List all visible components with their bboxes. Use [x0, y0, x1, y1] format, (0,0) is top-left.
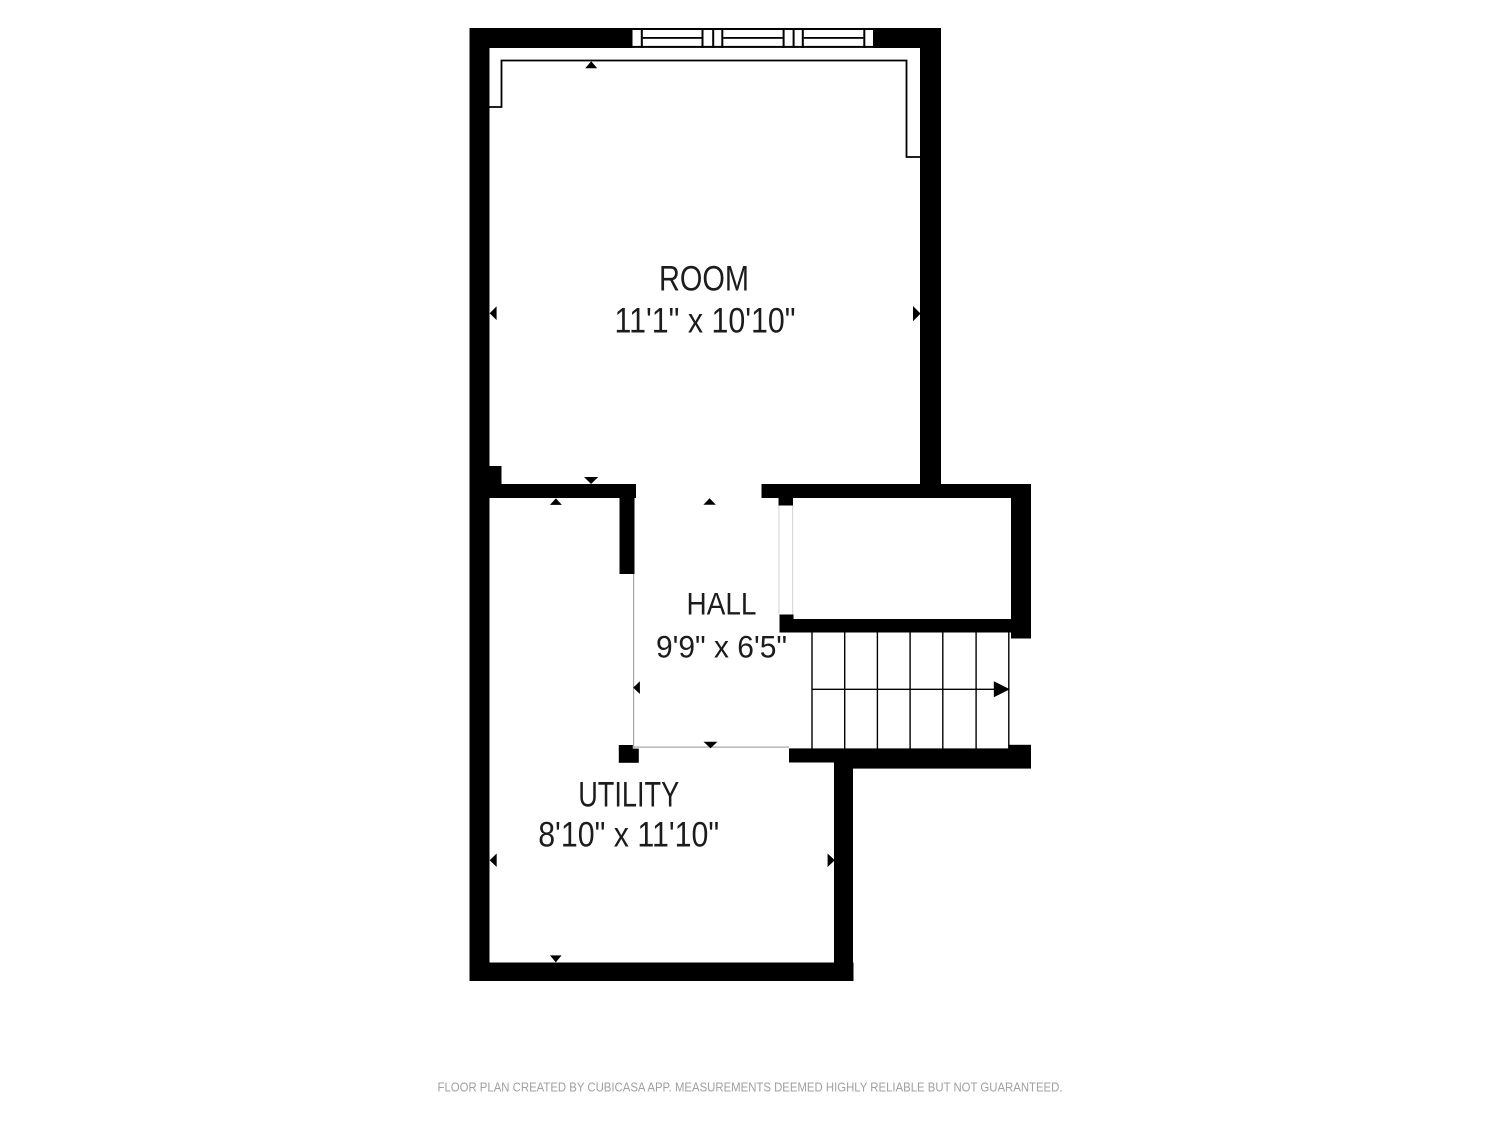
svg-text:UTILITY: UTILITY: [578, 776, 679, 815]
svg-text:ROOM: ROOM: [659, 260, 749, 299]
svg-text:FLOOR PLAN CREATED BY CUBICASA: FLOOR PLAN CREATED BY CUBICASA APP. MEAS…: [438, 1080, 1063, 1095]
svg-text:11'1" x 10'10": 11'1" x 10'10": [615, 302, 796, 341]
svg-text:9'9" x 6'5": 9'9" x 6'5": [656, 629, 787, 665]
svg-text:8'10" x 11'10": 8'10" x 11'10": [538, 816, 719, 855]
svg-text:HALL: HALL: [687, 586, 757, 622]
